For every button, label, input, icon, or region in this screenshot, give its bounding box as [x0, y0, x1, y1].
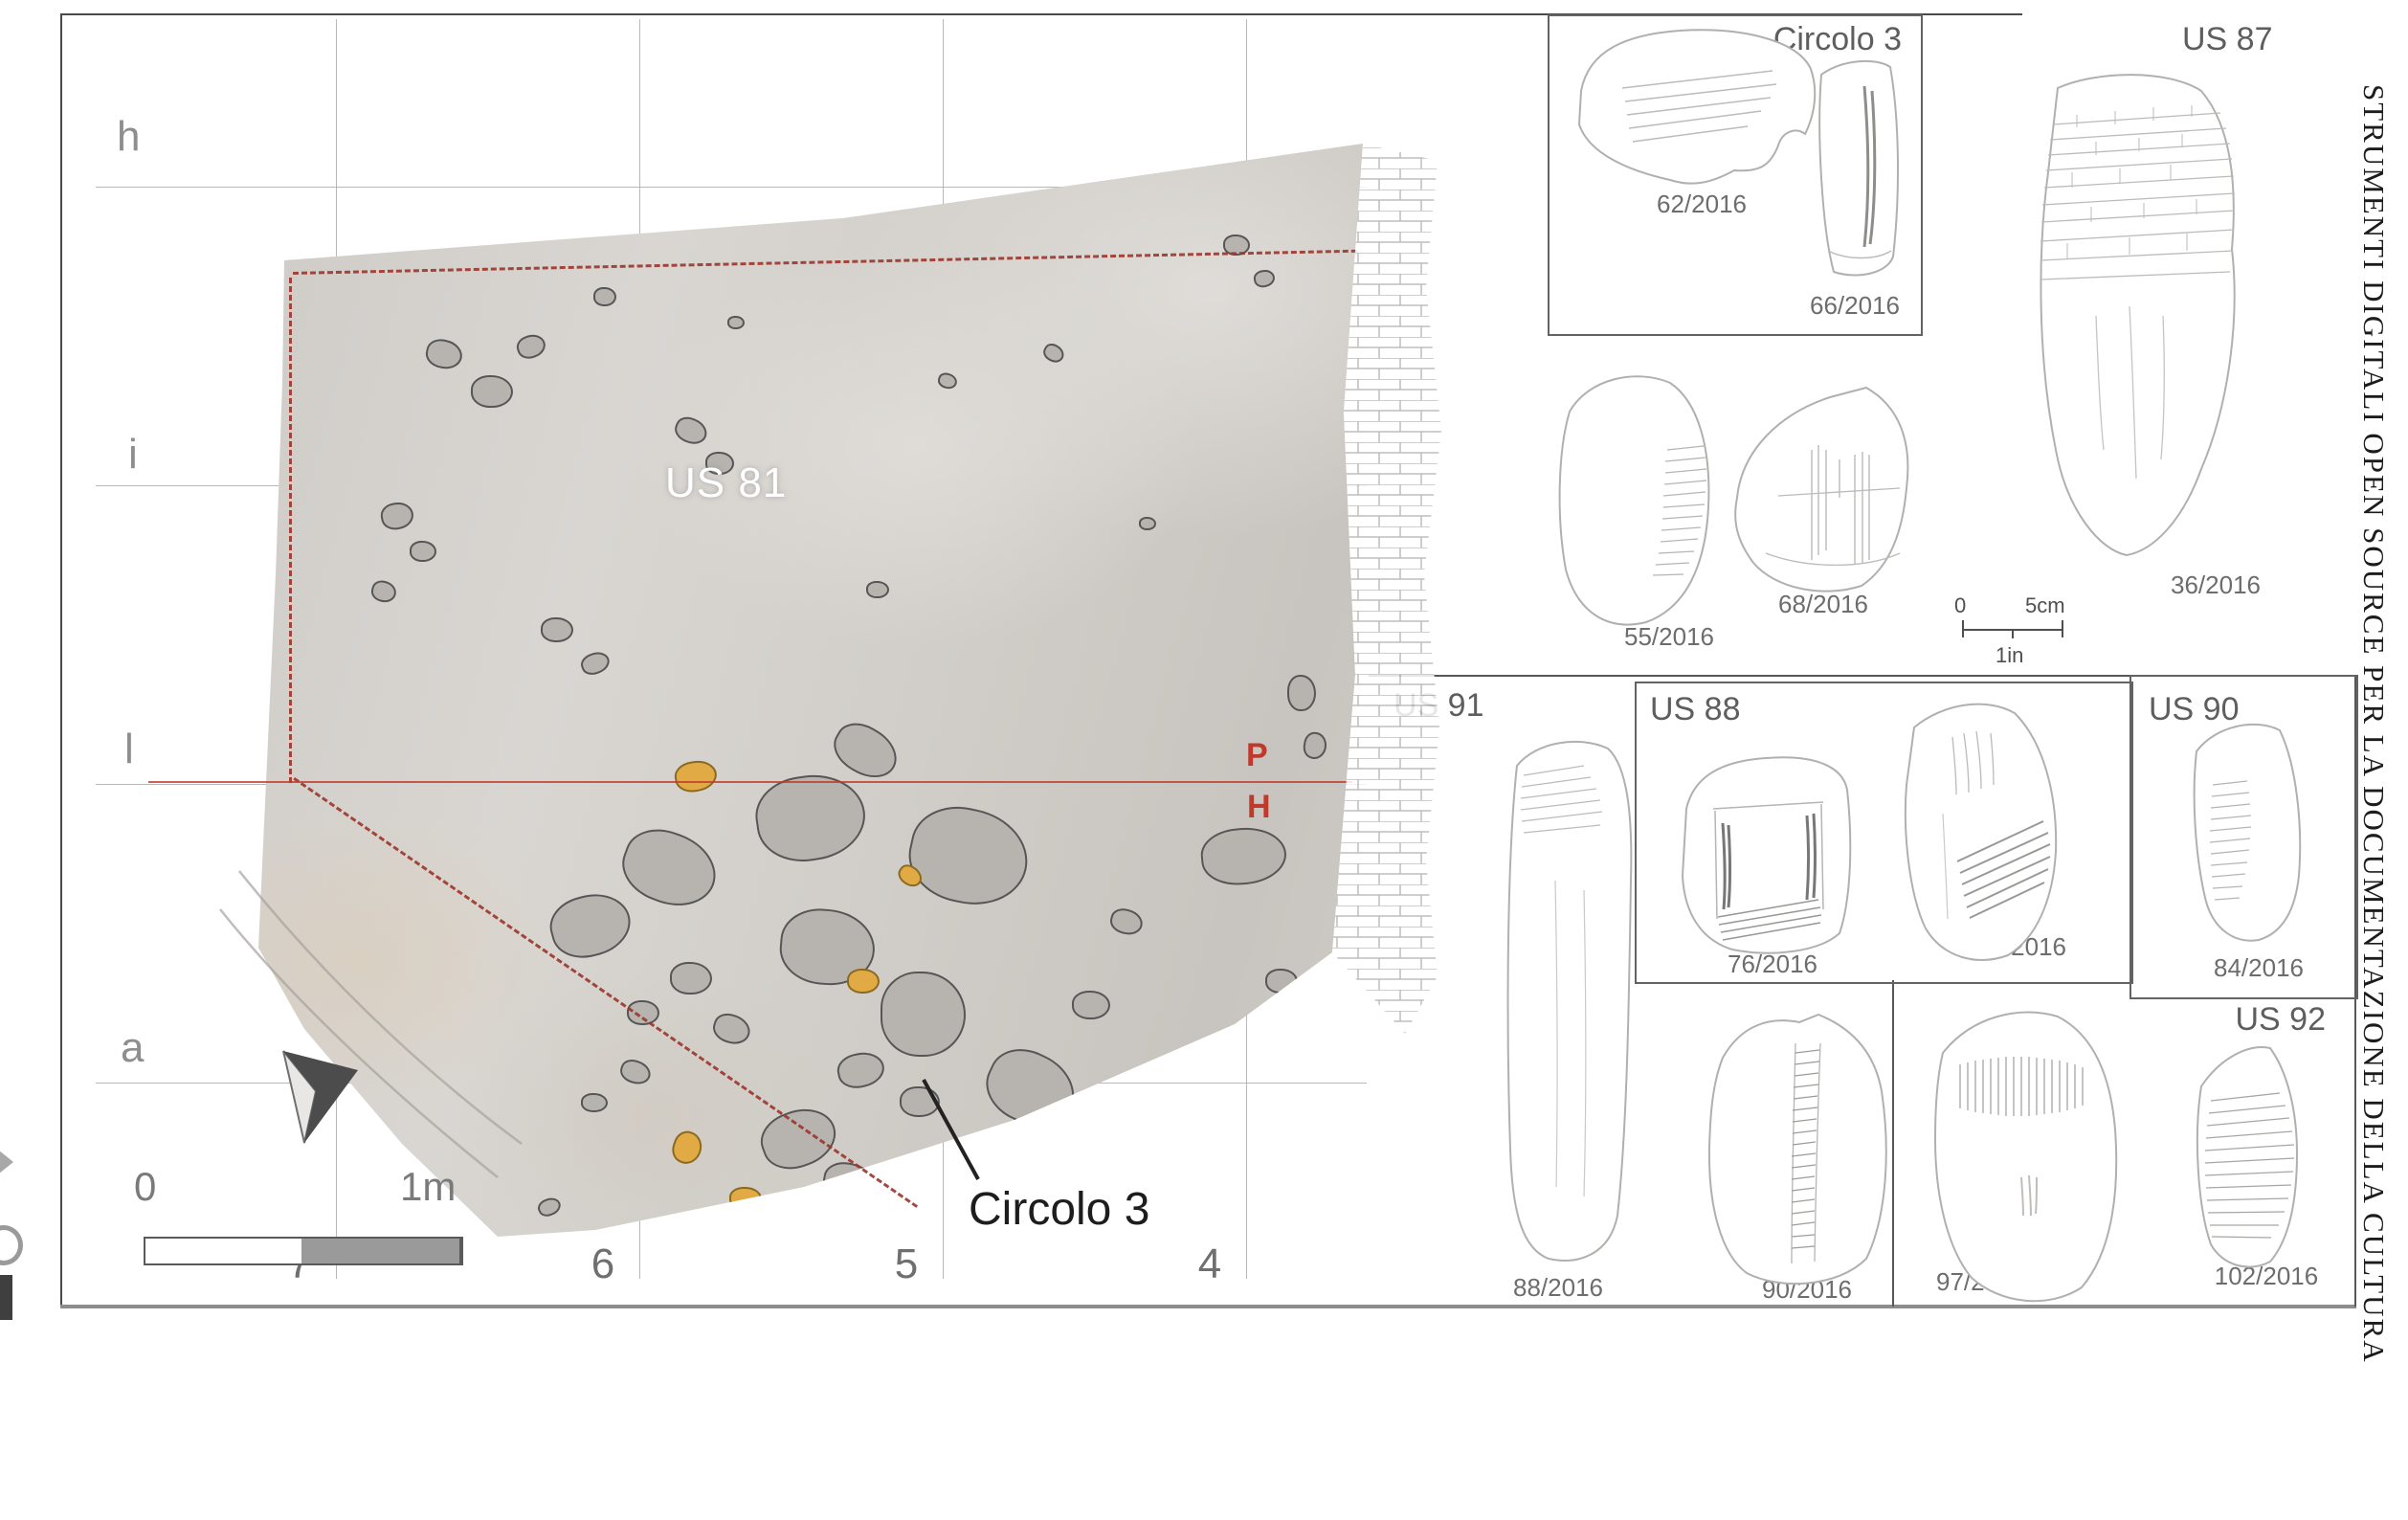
margin-fragment-circle [0, 1225, 23, 1265]
catalog-scalebar-tick-left [1962, 620, 1964, 637]
spec-label-88-2016: 88/2016 [1482, 1273, 1635, 1303]
stone [727, 316, 745, 329]
stone [1199, 824, 1289, 888]
group-label-us90: US 90 [2149, 691, 2240, 728]
spec-label-76-2016: 76/2016 [1696, 950, 1849, 979]
grid-row-label-l: l [124, 726, 134, 773]
stone [578, 649, 613, 679]
stone [820, 1159, 878, 1206]
grid-row-label-i: i [128, 431, 138, 479]
stone [1252, 268, 1276, 289]
figure-frame-left [60, 13, 62, 1308]
stone [709, 1010, 753, 1049]
margin-fragment-bar [0, 1275, 12, 1320]
catalog-scalebar-tick-right [2062, 620, 2063, 637]
stone [536, 1195, 564, 1219]
plan-scalebar-fill [301, 1237, 461, 1265]
us92-left-border [1892, 980, 1894, 1307]
group-label-circolo3: Circolo 3 [1744, 21, 1902, 58]
section-label-p: P [1246, 737, 1268, 774]
grid-row-label-a: a [121, 1024, 144, 1072]
stone [581, 1093, 608, 1112]
stone [613, 818, 725, 917]
spec-label-55-2016: 55/2016 [1593, 622, 1746, 652]
artifact-88-2016-drawing [1508, 742, 1632, 1261]
stone [379, 500, 415, 531]
spec-label-90-2016: 90/2016 [1730, 1275, 1884, 1305]
catalog-scale-zero: 0 [1954, 593, 1966, 618]
group-label-us92: US 92 [2182, 1001, 2326, 1039]
stone [514, 331, 548, 362]
group-label-us87: US 87 [2182, 21, 2273, 58]
spec-label-62-2016: 62/2016 [1625, 190, 1778, 219]
grid-col-label-6: 6 [574, 1241, 632, 1288]
stone [471, 375, 513, 408]
stone [1034, 1122, 1084, 1168]
grid-row-label-h: h [117, 113, 140, 161]
grid-col-label-4: 4 [1181, 1241, 1238, 1288]
artifact-36-2016-drawing [2040, 75, 2235, 555]
stone [1265, 969, 1298, 994]
artifact-68-2016-drawing [1735, 388, 1907, 592]
spec-label-97-2016: 97/2016 [1905, 1267, 2058, 1297]
grid-col-label-5: 5 [878, 1241, 935, 1288]
group-label-us91: US 91 [1394, 687, 1484, 725]
stone [881, 972, 966, 1057]
catalog-scalebar-tick-mid [2012, 629, 2014, 638]
stone-yellow [668, 1128, 706, 1168]
stone [617, 1057, 654, 1088]
spec-label-102-2016: 102/2016 [2190, 1262, 2343, 1291]
stone [825, 714, 905, 788]
spec-label-84-2016: 84/2016 [2182, 953, 2335, 983]
group-label-us88: US 88 [1650, 691, 1741, 728]
plan-scale-zero: 0 [134, 1164, 156, 1210]
artifact-55-2016-drawing [1560, 376, 1709, 624]
artifact-97-2016-drawing [1935, 1013, 2116, 1302]
margin-fragment-triangle [0, 1147, 13, 1177]
stone [593, 287, 616, 306]
stone-yellow [673, 757, 720, 794]
stone [1072, 991, 1110, 1019]
stone [670, 962, 712, 995]
catalog-scale-cm: 5cm [2025, 593, 2065, 618]
stone-yellow [729, 1187, 762, 1210]
stone [975, 1038, 1086, 1140]
artifact-102-2016-drawing [2197, 1047, 2297, 1267]
stone [423, 336, 464, 371]
circolo3-box [1548, 14, 1923, 336]
stone [1040, 341, 1067, 367]
stone [936, 371, 958, 391]
plan-feature-label: Circolo 3 [969, 1183, 1149, 1236]
stone [671, 414, 710, 449]
spec-label-66-2016: 66/2016 [1778, 291, 1931, 321]
stone [369, 578, 399, 605]
stone [544, 885, 637, 966]
stone [901, 797, 1037, 915]
stone [835, 1048, 887, 1091]
stone-yellow [847, 969, 880, 994]
page-running-title: STRUMENTI DIGITALI OPEN SOURCE PER LA DO… [2356, 84, 2391, 1520]
plan-scale-end: 1m [400, 1164, 456, 1210]
artifact-90-2016-drawing [1709, 1015, 1886, 1284]
spec-label-68-2016: 68/2016 [1747, 590, 1900, 619]
stone [900, 1086, 940, 1117]
excavation-limit-dashed-left [289, 278, 292, 783]
stone [866, 581, 889, 598]
stone [1139, 517, 1156, 530]
stone [1107, 905, 1146, 938]
section-line-ph [148, 781, 1352, 783]
stone [750, 769, 870, 868]
plan-unit-label: US 81 [665, 459, 787, 507]
stone [541, 617, 573, 642]
spec-label-87-2016: 87/2016 [1945, 932, 2098, 962]
stone [1302, 730, 1328, 761]
stone [410, 541, 436, 562]
section-label-h: H [1247, 789, 1271, 826]
catalog-scale-inch: 1in [1996, 643, 2023, 668]
figure-frame-bottom [60, 1305, 2356, 1308]
spec-label-36-2016: 36/2016 [2139, 570, 2292, 600]
stone [1287, 675, 1316, 711]
